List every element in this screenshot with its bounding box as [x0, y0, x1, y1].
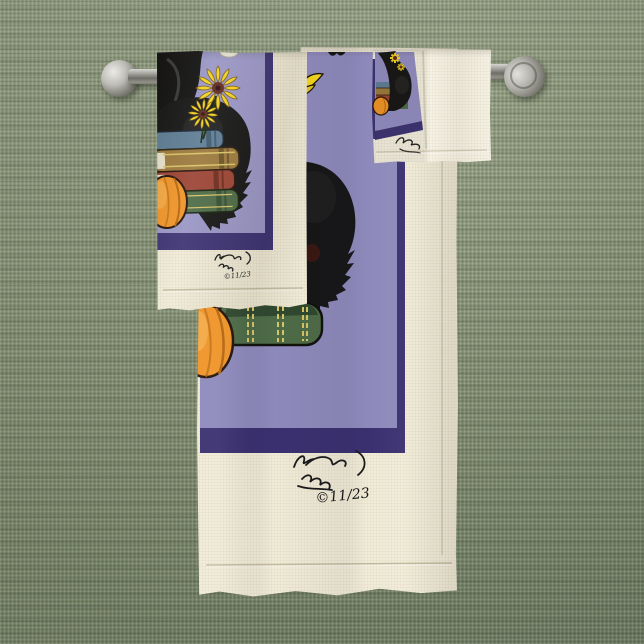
- pumpkin-illustration: [157, 176, 187, 228]
- book-tan: [157, 147, 239, 172]
- hanging-loop: [220, 51, 238, 57]
- hem-crease: [376, 150, 487, 152]
- book-blue: [157, 130, 224, 150]
- artist-signature: ©11/23: [215, 252, 252, 281]
- artist-signature: ©11/23: [294, 451, 371, 507]
- hand-towel-border-right: [265, 51, 273, 250]
- hand-towel-artwork: ©11/23: [157, 51, 307, 312]
- hem-crease: [163, 288, 303, 290]
- towel-bar-right-wall-mount: [504, 56, 545, 97]
- hem-crease: [206, 563, 452, 565]
- signature-copyright-text: ©11/23: [223, 270, 251, 281]
- hand-towel: ©11/23: [157, 51, 307, 312]
- bath-towel-border-bottom: [200, 428, 405, 453]
- mini-pumpkin-illustration: [373, 97, 389, 115]
- washcloth-artwork: [372, 49, 491, 165]
- washcloth: [372, 49, 491, 165]
- bathroom-wall-scene: ©11/23: [0, 0, 644, 644]
- hand-towel-border-bottom: [157, 233, 273, 250]
- fold-crease: [423, 51, 426, 149]
